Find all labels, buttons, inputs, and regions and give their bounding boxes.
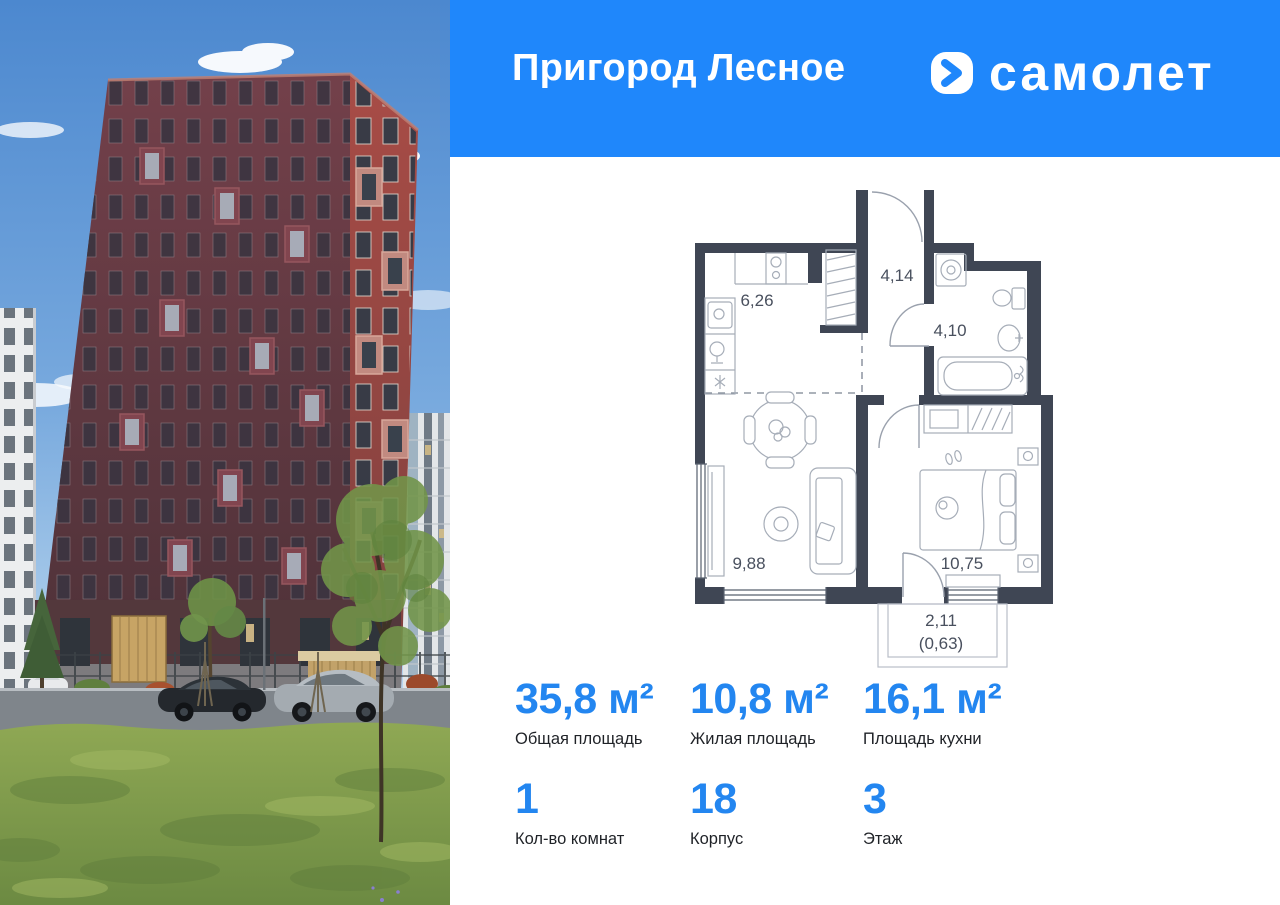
stat-kitchen-area-label: Площадь кухни xyxy=(863,730,1093,749)
light-pole xyxy=(263,598,266,690)
room-area-bedroom: 10,75 xyxy=(941,554,984,573)
room-area-bathroom: 4,10 xyxy=(933,321,966,340)
room-area-kitchen: 6,26 xyxy=(740,291,773,310)
floor-plan: 6,26 4,14 4,10 9,88 10,75 2,11 (0,63) xyxy=(680,182,1060,682)
plan-dashed-lines xyxy=(705,333,862,395)
plan-windows xyxy=(695,464,998,604)
stat-kitchen-area-value: 16,1 м² xyxy=(863,676,1093,722)
header-bar: Пригород Лесное самолет xyxy=(450,0,1280,157)
building-photo xyxy=(0,0,450,905)
room-area-balcony: 2,11 xyxy=(925,611,957,630)
room-area-living: 9,88 xyxy=(732,554,765,573)
brand-logo: самолет xyxy=(931,51,1215,95)
samolet-arrow-icon xyxy=(931,52,973,94)
plan-furniture xyxy=(705,250,1038,667)
wooden-kiosk xyxy=(112,616,166,682)
room-area-hallway: 4,14 xyxy=(880,266,913,285)
stat-floor-value: 3 xyxy=(863,776,1093,822)
plan-walls xyxy=(695,190,1053,604)
stat-floor: 3 Этаж xyxy=(863,776,1093,849)
room-area-balcony-weighted: (0,63) xyxy=(919,634,963,653)
stat-kitchen-area: 16,1 м² Площадь кухни xyxy=(863,676,1093,749)
project-title: Пригород Лесное xyxy=(512,47,845,90)
stat-floor-label: Этаж xyxy=(863,830,1093,849)
brand-name: самолет xyxy=(989,48,1215,98)
